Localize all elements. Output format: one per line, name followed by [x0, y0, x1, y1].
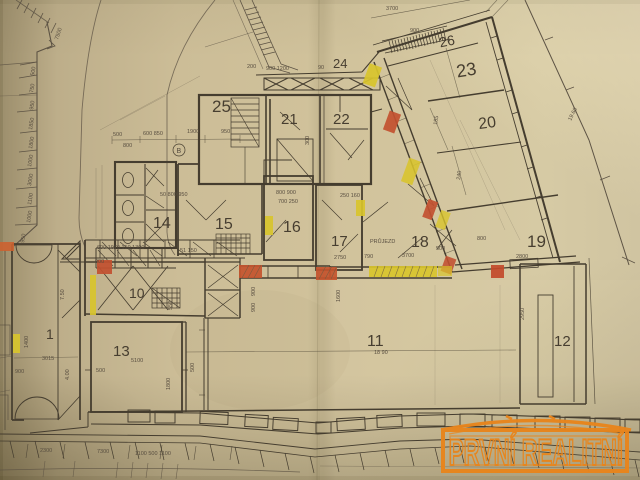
svg-text:25: 25: [212, 97, 231, 116]
svg-text:2950: 2950: [520, 308, 526, 320]
svg-text:19: 19: [527, 232, 546, 251]
svg-text:1400: 1400: [24, 336, 30, 348]
svg-text:900: 900: [95, 259, 104, 265]
svg-text:12: 12: [554, 333, 571, 350]
svg-text:950: 950: [221, 129, 230, 135]
svg-text:500: 500: [113, 132, 122, 138]
svg-text:5100: 5100: [131, 358, 143, 364]
svg-text:1800: 1800: [166, 378, 172, 390]
svg-text:900: 900: [15, 369, 24, 375]
svg-text:18 90: 18 90: [374, 350, 388, 356]
svg-text:50 800 950: 50 800 950: [160, 192, 188, 198]
svg-text:550: 550: [168, 301, 174, 310]
svg-text:90: 90: [318, 65, 324, 71]
svg-text:200: 200: [247, 64, 256, 70]
svg-text:17: 17: [331, 233, 348, 250]
svg-text:2800: 2800: [516, 254, 528, 260]
svg-text:13: 13: [113, 343, 130, 360]
svg-text:900: 900: [251, 287, 257, 296]
svg-text:3700: 3700: [402, 253, 414, 259]
svg-text:24: 24: [333, 56, 347, 71]
svg-text:250 160: 250 160: [340, 193, 360, 199]
svg-text:16: 16: [283, 219, 301, 236]
svg-text:51 150: 51 150: [180, 248, 197, 254]
svg-text:20: 20: [477, 114, 497, 133]
svg-text:B: B: [177, 148, 182, 155]
svg-text:500: 500: [190, 363, 196, 372]
svg-text:800: 800: [123, 143, 132, 149]
svg-text:1900: 1900: [187, 129, 199, 135]
svg-text:1600: 1600: [336, 290, 342, 302]
svg-text:800: 800: [477, 236, 486, 242]
svg-text:1: 1: [46, 326, 54, 342]
svg-text:10: 10: [129, 285, 145, 301]
svg-text:300: 300: [305, 136, 311, 145]
svg-text:1100 500 1100: 1100 500 1100: [135, 451, 171, 457]
svg-text:185: 185: [433, 115, 440, 125]
svg-text:23: 23: [455, 59, 478, 82]
svg-text:600 1970 150 1300: 600 1970 150 1300: [97, 245, 144, 251]
svg-text:700 250: 700 250: [278, 199, 298, 205]
svg-text:14: 14: [153, 215, 171, 232]
svg-text:21: 21: [281, 111, 298, 128]
svg-text:900: 900: [251, 303, 257, 312]
svg-text:900 1200: 900 1200: [266, 66, 289, 72]
svg-text:18: 18: [411, 234, 429, 251]
svg-text:PRVNÍ REALITNÍ: PRVNÍ REALITNÍ: [449, 432, 624, 473]
svg-text:22: 22: [333, 111, 350, 128]
svg-text:500: 500: [96, 368, 105, 374]
svg-text:600 850: 600 850: [143, 131, 163, 137]
svg-text:11: 11: [367, 333, 384, 350]
svg-text:500: 500: [436, 246, 445, 252]
svg-text:900: 900: [410, 28, 419, 34]
svg-text:26: 26: [438, 32, 457, 51]
svg-text:240: 240: [456, 170, 463, 180]
svg-text:2750: 2750: [334, 255, 346, 261]
svg-text:7300: 7300: [97, 449, 109, 455]
svg-text:790: 790: [364, 254, 373, 260]
svg-text:7.50: 7.50: [60, 289, 66, 300]
svg-text:15: 15: [215, 216, 233, 233]
svg-text:800 900: 800 900: [276, 190, 296, 196]
svg-text:PRŮJEZD: PRŮJEZD: [370, 238, 395, 245]
svg-text:2300: 2300: [40, 448, 52, 454]
svg-text:4.00: 4.00: [65, 369, 71, 380]
svg-text:3015: 3015: [42, 356, 54, 362]
svg-text:3700: 3700: [386, 6, 398, 12]
